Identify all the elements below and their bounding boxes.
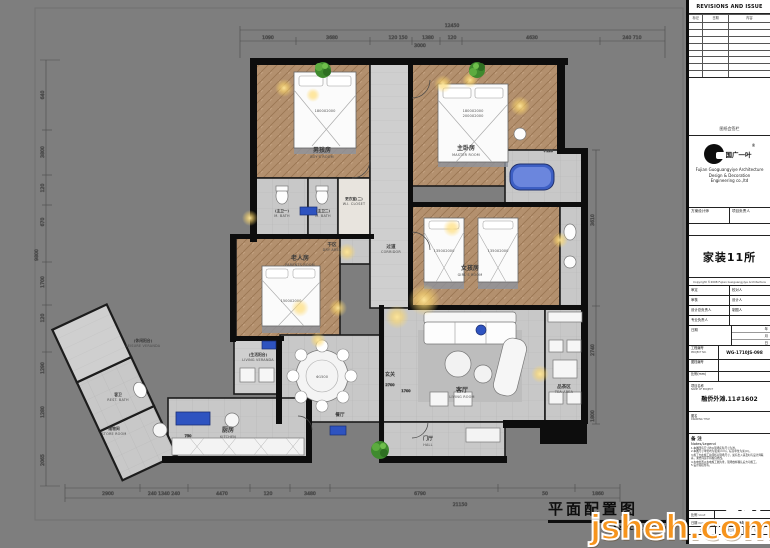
scale-mm-row: 比例(mm) — [689, 372, 770, 382]
sheet-title-text: 平面配置图 — [548, 498, 698, 519]
svg-text:M. BATH: M. BATH — [315, 214, 331, 218]
svg-text:STORE ROOM: STORE ROOM — [101, 432, 126, 436]
svg-text:3000: 3000 — [414, 43, 426, 49]
revisions-table: 标记 日期 内容 — [689, 14, 770, 78]
svg-text:240 710: 240 710 — [623, 35, 642, 41]
copyright-line: Copyright ©2008 Fujian Guoguangyiye Arch… — [689, 278, 770, 286]
sign-section: 图纸会签栏 — [689, 78, 770, 136]
revisions-row — [689, 22, 770, 29]
pouf-large — [445, 351, 471, 377]
svg-text:1380: 1380 — [422, 35, 434, 41]
svg-text:TEA AREA: TEA AREA — [554, 390, 574, 394]
revisions-header: REVISIONS AND ISSUE DATES — [689, 0, 770, 14]
revisions-row — [689, 43, 770, 50]
department-cell: 家装11所 — [689, 236, 770, 278]
svg-text:2900: 2900 — [102, 491, 114, 497]
date-units: 年 月 日 — [732, 326, 770, 345]
revisions-row — [689, 50, 770, 57]
bed-boy: 1800X2000 — [294, 72, 356, 154]
company-logo-icon — [704, 144, 724, 164]
svg-text:M. BATH: M. BATH — [274, 214, 290, 218]
svg-text:BOY'S ROOM: BOY'S ROOM — [310, 155, 334, 159]
svg-text:3610: 3610 — [590, 214, 596, 226]
svg-text:1090: 1090 — [262, 35, 274, 41]
label-tea: 品茶区 — [557, 383, 571, 390]
shoe-cabinet — [466, 428, 500, 442]
registered-mark-icon: ® — [752, 143, 756, 148]
project-name-section: 项目名称 NAME OF PROJECT 融侨外滩.11#1602 — [689, 382, 770, 412]
company-logo-section: 国广一叶® Fujian Guoguangyiye Architecture D… — [689, 136, 770, 208]
kitchen-sink — [153, 423, 167, 437]
svg-text:LEISURE VERANDA: LEISURE VERANDA — [126, 344, 161, 348]
revisions-row — [689, 56, 770, 63]
hall-blue-cabinet — [330, 426, 346, 435]
label-dining: 餐厅 — [334, 411, 345, 418]
bed-parents: 1500X2000 — [262, 266, 320, 333]
svg-text:6790: 6790 — [414, 491, 426, 497]
label-corridor: 过道 — [386, 243, 396, 250]
tea-table — [553, 360, 577, 378]
svg-text:1860: 1860 — [592, 491, 604, 497]
designer-row: 方案设计师 项目负责人 — [689, 208, 770, 224]
svg-text:HALL: HALL — [423, 443, 432, 447]
bed-master-size-a: 1800X2000 — [463, 109, 484, 113]
svg-text:GIRL'S ROOM: GIRL'S ROOM — [458, 273, 483, 277]
svg-text:3480: 3480 — [304, 491, 316, 497]
svg-text:1700: 1700 — [40, 276, 46, 288]
svg-text:120 150: 120 150 — [389, 35, 408, 41]
notes-section: 备 注 Notes/Legend 1.本图所有尺寸均以现场实际尺寸为准。 2.本… — [689, 434, 770, 511]
project-no-value: WG-1710JS-098 — [719, 346, 770, 359]
svg-text:2700: 2700 — [385, 383, 395, 387]
title-block: REVISIONS AND ISSUE DATES 标记 日期 内容 图纸会签栏… — [686, 0, 770, 544]
room-corridor — [370, 64, 412, 308]
dim-bottom-total: 21150 — [453, 502, 468, 508]
label-living-veranda: (生活阳台) — [249, 352, 268, 357]
bed-master-size-b: 2000X2000 — [463, 114, 484, 118]
floorplan-sheet: { "sheet_title": {"cn": "平面配置图", "scale"… — [0, 0, 770, 544]
svg-text:REST. BATH: REST. BATH — [107, 398, 129, 402]
label-mbath1: (主卫一) — [275, 208, 289, 213]
label-mbath2: (主卫二) — [316, 208, 330, 213]
svg-text:W.I. CLOSET: W.I. CLOSET — [343, 202, 366, 206]
label-leisure-veranda: (休闲阳台) — [134, 338, 153, 343]
water-bar-sink — [476, 325, 486, 335]
svg-text:640: 640 — [40, 91, 46, 100]
label-dry: 干区 — [327, 241, 337, 248]
svg-text:50: 50 — [542, 491, 548, 497]
svg-text:2740: 2740 — [590, 344, 596, 356]
label-store: 储物间 — [108, 426, 120, 431]
svg-text:1290: 1290 — [40, 362, 46, 374]
sheet-title-underline — [548, 520, 666, 523]
sofa-set — [418, 312, 529, 406]
svg-text:CORRIDOR: CORRIDOR — [381, 250, 401, 254]
label-girl: 女孩房 — [461, 264, 479, 272]
bed-girl-size-b: 1350X2000 — [488, 249, 509, 253]
revisions-row — [689, 36, 770, 43]
sign-note: 图纸会签栏 — [689, 126, 770, 132]
sheet-title: 平面配置图 A2 SCALE:1:50 — [548, 498, 698, 532]
tv-cabinet — [548, 312, 582, 322]
date-row: 日期 DATE 2018年06月 — [689, 519, 770, 527]
svg-text:KITCHEN: KITCHEN — [220, 435, 236, 439]
svg-text:MASTER ROOM: MASTER ROOM — [452, 153, 480, 157]
svg-text:3680: 3680 — [326, 35, 338, 41]
svg-text:670: 670 — [40, 218, 46, 227]
svg-text:120: 120 — [448, 35, 457, 41]
stove — [176, 412, 210, 425]
project-no-row: 工程编号 PROJECT NO. WG-1710JS-098 — [689, 346, 770, 360]
svg-text:750: 750 — [185, 434, 193, 438]
bathtub-inner — [513, 167, 551, 187]
label-kitchen: 厨房 — [222, 426, 234, 434]
approval-row: 审定校对人 — [689, 286, 770, 296]
label-living: 客厅 — [455, 386, 468, 394]
svg-text:4470: 4470 — [216, 491, 228, 497]
date-label: 日期 — [689, 326, 732, 345]
label-guest-bath: 客卫 — [113, 392, 122, 397]
dim-left-total: 9800 — [34, 249, 40, 261]
date-value: 2018年06月 — [715, 519, 770, 526]
label-parents: 老人房 — [290, 254, 309, 262]
scale-row: 比例 SCALE — [689, 511, 770, 519]
label-boy: 男孩房 — [313, 146, 331, 154]
bottom-columns-row: 会签 出图日期 版次 — [689, 527, 770, 535]
pouf-small — [474, 365, 492, 383]
floor-plan-canvas: 1800X2000 1800X2000 2000X2000 1350X2000 — [0, 0, 770, 544]
dining-table: Φ1500 — [287, 340, 357, 412]
figure-name-section: 图名 DRAWING TITLE — [689, 412, 770, 434]
designer-label: 方案设计师 — [689, 208, 730, 223]
label-foyer: 玄关 — [385, 371, 395, 378]
svg-text:120: 120 — [40, 314, 46, 323]
revisions-table-header: 标记 日期 内容 — [689, 14, 770, 22]
doc-no-row: 图档编号 — [689, 360, 770, 372]
svg-text:4630: 4630 — [526, 35, 538, 41]
approval-row: 审核设计人 — [689, 296, 770, 306]
label-master: 主卧房 — [457, 144, 475, 152]
svg-text:2065: 2065 — [40, 454, 46, 466]
bed-girl-size-a: 1350X2000 — [434, 249, 455, 253]
svg-text:PARENTS ROOM: PARENTS ROOM — [285, 263, 315, 267]
pm-label: 项目负责人 — [730, 208, 770, 223]
svg-text:LIVING VERANDA: LIVING VERANDA — [242, 358, 274, 362]
approval-row: 设计总负责人制图人 — [689, 306, 770, 316]
label-hall: 门厅 — [423, 435, 433, 442]
date-fields-row: 日期 年 月 日 — [689, 326, 770, 346]
bed-boy-size: 1800X2000 — [315, 109, 336, 113]
svg-text:3800: 3800 — [40, 146, 46, 158]
svg-text:+120: +120 — [543, 149, 554, 153]
room-closet — [338, 178, 370, 238]
revisions-row — [689, 70, 770, 77]
svg-text:120: 120 — [264, 491, 273, 497]
company-name-en: Fujian Guoguangyiye Architecture Design … — [689, 165, 770, 184]
svg-text:240 1340 240: 240 1340 240 — [148, 491, 180, 497]
revisions-row — [689, 29, 770, 36]
svg-text:1800: 1800 — [590, 410, 596, 422]
sheet-scale-text: A2 SCALE:1:50 — [548, 524, 666, 532]
dim-top-total: 12450 — [445, 23, 460, 29]
project-name-value: 融侨外滩.11#1602 — [689, 394, 770, 403]
svg-text:1280: 1280 — [40, 406, 46, 418]
svg-text:1700: 1700 — [401, 389, 411, 393]
revisions-row — [689, 63, 770, 70]
approval-row: 专业负责人 — [689, 316, 770, 326]
svg-text:LIVING ROOM: LIVING ROOM — [449, 395, 474, 399]
dining-table-size: Φ1500 — [316, 375, 329, 379]
company-logo-cn: 国广一叶 — [726, 149, 752, 159]
svg-text:120: 120 — [40, 184, 46, 193]
designer-empty-row — [689, 224, 770, 236]
svg-text:DRY AREA: DRY AREA — [323, 248, 342, 252]
label-closet: 更衣室(二) — [344, 196, 363, 201]
